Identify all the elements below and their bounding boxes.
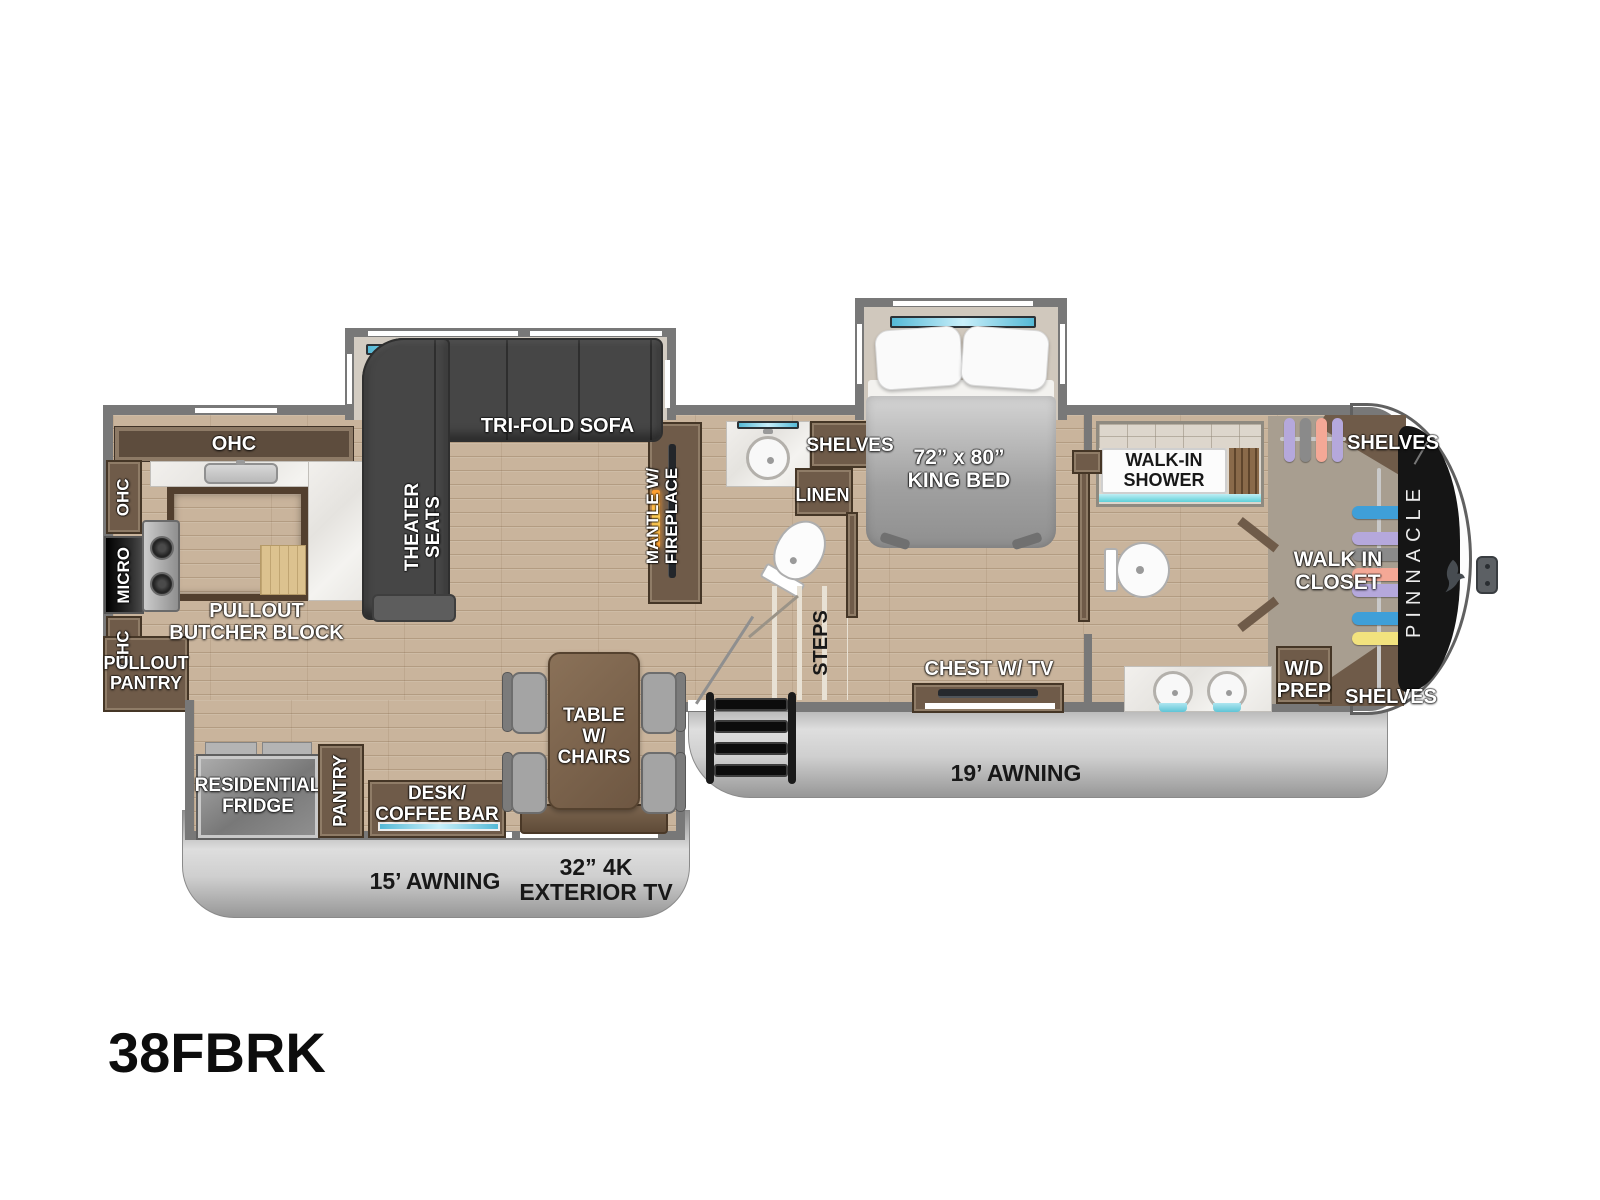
window-icon <box>195 408 277 413</box>
awning-15ft-label: 15’ AWNING <box>345 869 525 894</box>
dinette-chair <box>502 746 544 816</box>
step-rail <box>706 692 714 784</box>
steps-label: STEPS <box>810 588 832 698</box>
closet-shelves-bottom-label: SHELVES <box>1336 686 1446 708</box>
chair-seat <box>511 672 547 734</box>
window-icon <box>925 703 1055 709</box>
faucet-icon <box>763 429 773 434</box>
drain-icon <box>1226 690 1232 696</box>
fridge-label: RESIDENTIAL FRIDGE <box>195 776 322 818</box>
chest-label: CHEST W/ TV <box>908 658 1070 680</box>
window-icon <box>347 354 352 404</box>
desk-label: DESK/ COFFEE BAR <box>370 784 504 826</box>
entry-steps-icon <box>706 692 796 784</box>
double-vanity <box>1124 666 1272 712</box>
fridge-counter-flap <box>262 742 312 756</box>
closet-shelves-top-label: SHELVES <box>1338 432 1448 454</box>
pullout-pantry-label: PULLOUT PANTRY <box>104 654 189 694</box>
steps-rail <box>846 512 858 618</box>
sink-icon <box>746 436 790 480</box>
butcher-block <box>260 545 306 595</box>
pillow-icon <box>874 325 964 391</box>
hanger-icon <box>1300 418 1311 462</box>
headboard-light-icon <box>890 316 1036 328</box>
dinette-chair <box>502 666 544 736</box>
divider-wall <box>1084 634 1092 704</box>
faucet-icon <box>236 460 245 465</box>
window-icon <box>893 301 1033 306</box>
exterior-tv-label: 32” 4K EXTERIOR TV <box>511 855 681 906</box>
king-bed-label: 72” x 80” KING BED <box>878 446 1040 492</box>
interior-steps <box>752 586 848 700</box>
kitchen-counter-return <box>308 461 366 601</box>
hitch-pin-icon <box>1476 556 1498 594</box>
step-tread <box>714 764 788 777</box>
step-tread <box>714 720 788 733</box>
vanity-light-icon <box>1213 703 1241 712</box>
range-stove <box>142 520 180 612</box>
shower-tile <box>1099 424 1261 448</box>
hitch-bolt-icon <box>1485 564 1490 569</box>
kitchen-sink-icon <box>204 463 278 484</box>
wd-prep-label: W/D PREP <box>1268 658 1340 702</box>
nightstand <box>1072 450 1102 474</box>
window-icon <box>1060 324 1065 384</box>
dinette-chair <box>644 666 686 736</box>
ohc-label: OHC <box>115 478 134 516</box>
step-rail <box>788 692 796 784</box>
tv-icon <box>938 689 1038 698</box>
walk-in-shower: WALK-IN SHOWER <box>1096 421 1264 507</box>
window-icon <box>665 360 670 408</box>
burner-icon <box>150 572 174 596</box>
hanger-icon <box>1284 418 1295 462</box>
pantry: PANTRY <box>318 744 364 838</box>
overhead-cabinet-top: OHC <box>115 427 353 461</box>
awning-19ft-label: 19’ AWNING <box>931 761 1101 786</box>
mid-bath-window-icon <box>737 421 799 429</box>
closet-label: WALK IN CLOSET <box>1272 548 1404 594</box>
residential-fridge: RESIDENTIAL FRIDGE <box>198 756 318 838</box>
hitch-bolt-icon <box>1485 581 1490 586</box>
burner-icon <box>150 536 174 560</box>
toilet-icon <box>1104 538 1174 602</box>
floorplan-canvas: 15’ AWNING 32” 4K EXTERIOR TV 19’ AWNING… <box>0 0 1600 1200</box>
window-icon <box>530 331 662 336</box>
jayco-bird-icon <box>1440 556 1466 596</box>
pantry-label: PANTRY <box>331 755 351 827</box>
pillow-icon <box>960 325 1050 391</box>
chair-seat <box>641 752 677 814</box>
chair-seat <box>511 752 547 814</box>
vanity-light-icon <box>1159 703 1187 712</box>
drain-icon <box>1172 690 1178 696</box>
butcher-block-label: PULLOUT BUTCHER BLOCK <box>154 600 359 644</box>
shower-bench <box>1229 448 1259 494</box>
fireplace-label: MANTLE W/ FIREPLACE <box>643 440 683 592</box>
linen-label: LINEN <box>780 486 865 506</box>
shower-pan: WALK-IN SHOWER <box>1101 448 1227 494</box>
chair-seat <box>641 672 677 734</box>
micro-label: MICRO <box>115 547 134 604</box>
shower-threshold <box>1099 494 1261 502</box>
window-icon <box>857 324 862 384</box>
drain-icon <box>767 457 774 464</box>
fridge-counter-flap <box>205 742 257 756</box>
step-tread <box>714 698 788 711</box>
overhead-cabinet-upper: OHC <box>106 460 142 534</box>
sliding-door <box>1078 468 1090 622</box>
microwave: MICRO <box>104 536 144 614</box>
shower-label: WALK-IN SHOWER <box>1124 451 1205 491</box>
sofa-label: TRI-FOLD SOFA <box>460 415 655 437</box>
toilet-drain <box>1136 566 1144 574</box>
floorplan-model-label: 38FBRK <box>108 1020 326 1085</box>
ohc-label: OHC <box>212 433 256 455</box>
theater-seats-label: THEATER SEATS <box>403 452 445 602</box>
step-tread <box>714 742 788 755</box>
hanger-icon <box>1316 418 1327 462</box>
table-label: TABLE W/ CHAIRS <box>550 706 638 769</box>
dinette-chair <box>644 746 686 816</box>
brand-decal: PINNACLE <box>1404 440 1424 680</box>
window-icon <box>368 331 518 336</box>
